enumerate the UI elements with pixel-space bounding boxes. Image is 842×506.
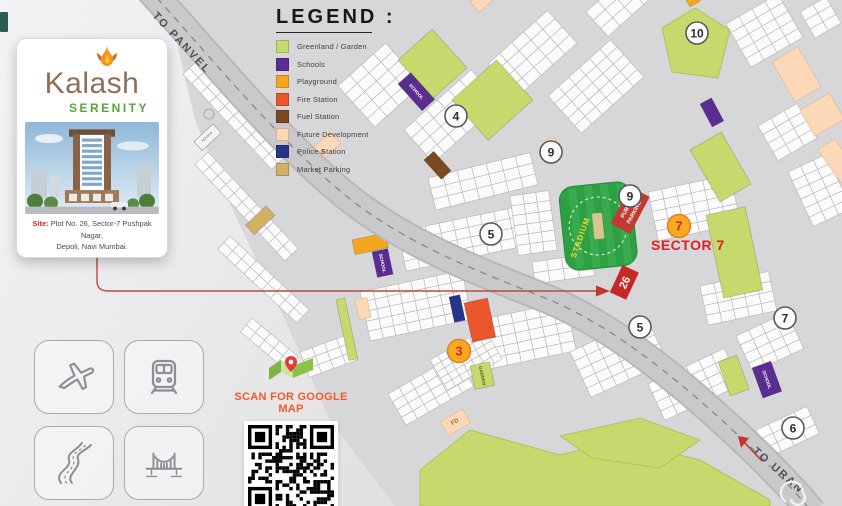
svg-text:3: 3 [455,344,462,359]
airplane-icon [48,353,100,401]
legend-items: Greenland / GardenSchoolsPlaygroundFire … [276,40,406,176]
legend-swatch [276,75,289,88]
sector-marker-6: 6 [782,417,804,439]
svg-text:10: 10 [690,27,704,41]
corner-decoration [0,12,8,32]
legend-item: Playground [276,75,406,88]
legend-item-label: Future Development [297,130,369,139]
site-location-brochure: SCHOOLSCHOOLSCHOOLFDFDFDGARDEN TO PANVEL… [0,0,842,506]
legend-item: Market Parking [276,163,406,176]
legend-item: Schools [276,58,406,71]
svg-text:6: 6 [790,422,797,436]
legend-underline [276,32,372,33]
legend-item-label: Schools [297,60,325,69]
road-icon [49,438,99,488]
legend-swatch [276,163,289,176]
sector-marker-9: 9 [540,141,562,163]
building-image [25,122,159,214]
svg-text:5: 5 [637,321,644,335]
brand-name: Kalash [25,69,159,99]
legend-item: Police Station [276,145,406,158]
legend-item-label: Greenland / Garden [297,42,367,51]
sector-marker-5: 5 [480,223,502,245]
sector-marker-4: 4 [445,105,467,127]
sector-marker-10: 10 [686,22,708,44]
brand-card: Kalash SERENITY [16,38,168,258]
brand-tagline: SERENITY [25,101,159,115]
kalash-logo: Kalash SERENITY [25,45,159,115]
svg-text:9: 9 [627,190,634,204]
sector-marker-7: 7 [668,215,691,238]
legend-swatch [276,40,289,53]
sector-marker-9: 9 [619,185,641,207]
google-map-icon [267,354,315,384]
legend-swatch [276,110,289,123]
svg-text:7: 7 [782,312,789,326]
legend-item: Fire Station [276,93,406,106]
svg-text:7: 7 [675,219,682,234]
svg-text:5: 5 [488,228,495,242]
svg-text:9: 9 [548,146,555,160]
sector-marker-7: 7 [774,307,796,329]
legend-swatch [276,58,289,71]
legend-swatch [276,145,289,158]
legend-item-label: Fire Station [297,95,338,104]
plot-block [510,191,557,256]
scan-heading: SCAN FOR GOOGLE MAP [222,391,360,415]
flame-icon [94,45,120,69]
site-address-line2: Depoli, Navi Mumbai. [56,242,127,251]
bridge-tile [124,426,204,500]
legend: LEGEND : Greenland / GardenSchoolsPlaygr… [276,6,406,180]
bridge-icon [138,439,190,487]
site-address-line1: Plot No. 26, Sector-7 Pushpak Nagar, [51,219,152,240]
legend-item: Future Development [276,128,406,141]
train-tile [124,340,204,414]
legend-swatch [276,128,289,141]
qr-code [244,421,338,506]
sector-marker-3: 3 [448,340,471,363]
legend-item-label: Playground [297,77,337,86]
legend-item: Fuel Station [276,110,406,123]
sector-marker-5: 5 [629,316,651,338]
legend-item-label: Police Station [297,147,346,156]
scan-block: SCAN FOR GOOGLE MAP SITE LOCATION MAP [222,354,360,506]
legend-title: LEGEND : [276,6,406,29]
sector-7-title: SECTOR 7 [651,237,725,253]
legend-item: Greenland / Garden [276,40,406,53]
legend-item-label: Market Parking [297,165,350,174]
transport-icons [34,340,204,500]
svg-text:4: 4 [453,110,460,124]
train-icon [139,352,189,402]
road-tile [34,426,114,500]
legend-item-label: Fuel Station [297,112,339,121]
site-address: Site: Plot No. 26, Sector-7 Pushpak Naga… [25,218,159,253]
site-label: Site: [32,219,48,228]
legend-swatch [276,93,289,106]
airplane-tile [34,340,114,414]
